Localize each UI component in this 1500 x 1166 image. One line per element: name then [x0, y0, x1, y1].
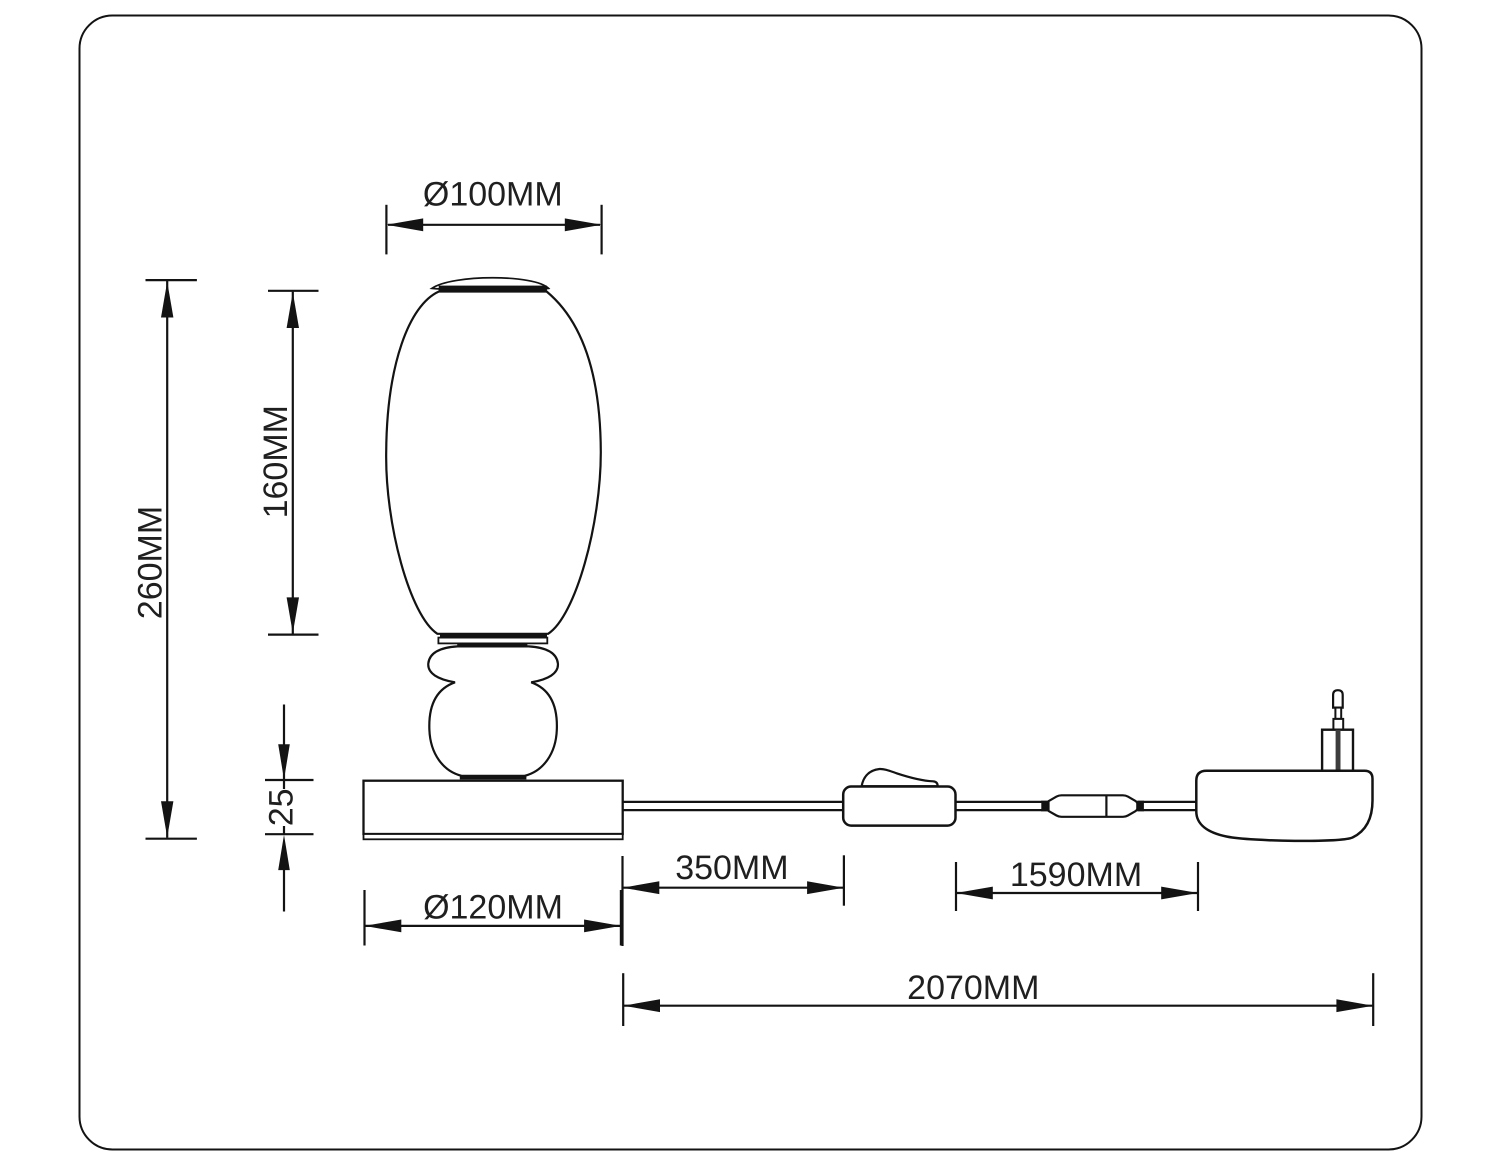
svg-text:Ø100MM: Ø100MM	[423, 176, 563, 214]
svg-text:1590MM: 1590MM	[1010, 856, 1142, 894]
svg-text:260MM: 260MM	[132, 506, 170, 619]
svg-text:160MM: 160MM	[257, 405, 295, 518]
svg-text:25: 25	[263, 788, 301, 826]
svg-text:Ø120MM: Ø120MM	[423, 889, 563, 927]
svg-text:350MM: 350MM	[675, 849, 788, 887]
svg-text:2070MM: 2070MM	[907, 969, 1039, 1007]
